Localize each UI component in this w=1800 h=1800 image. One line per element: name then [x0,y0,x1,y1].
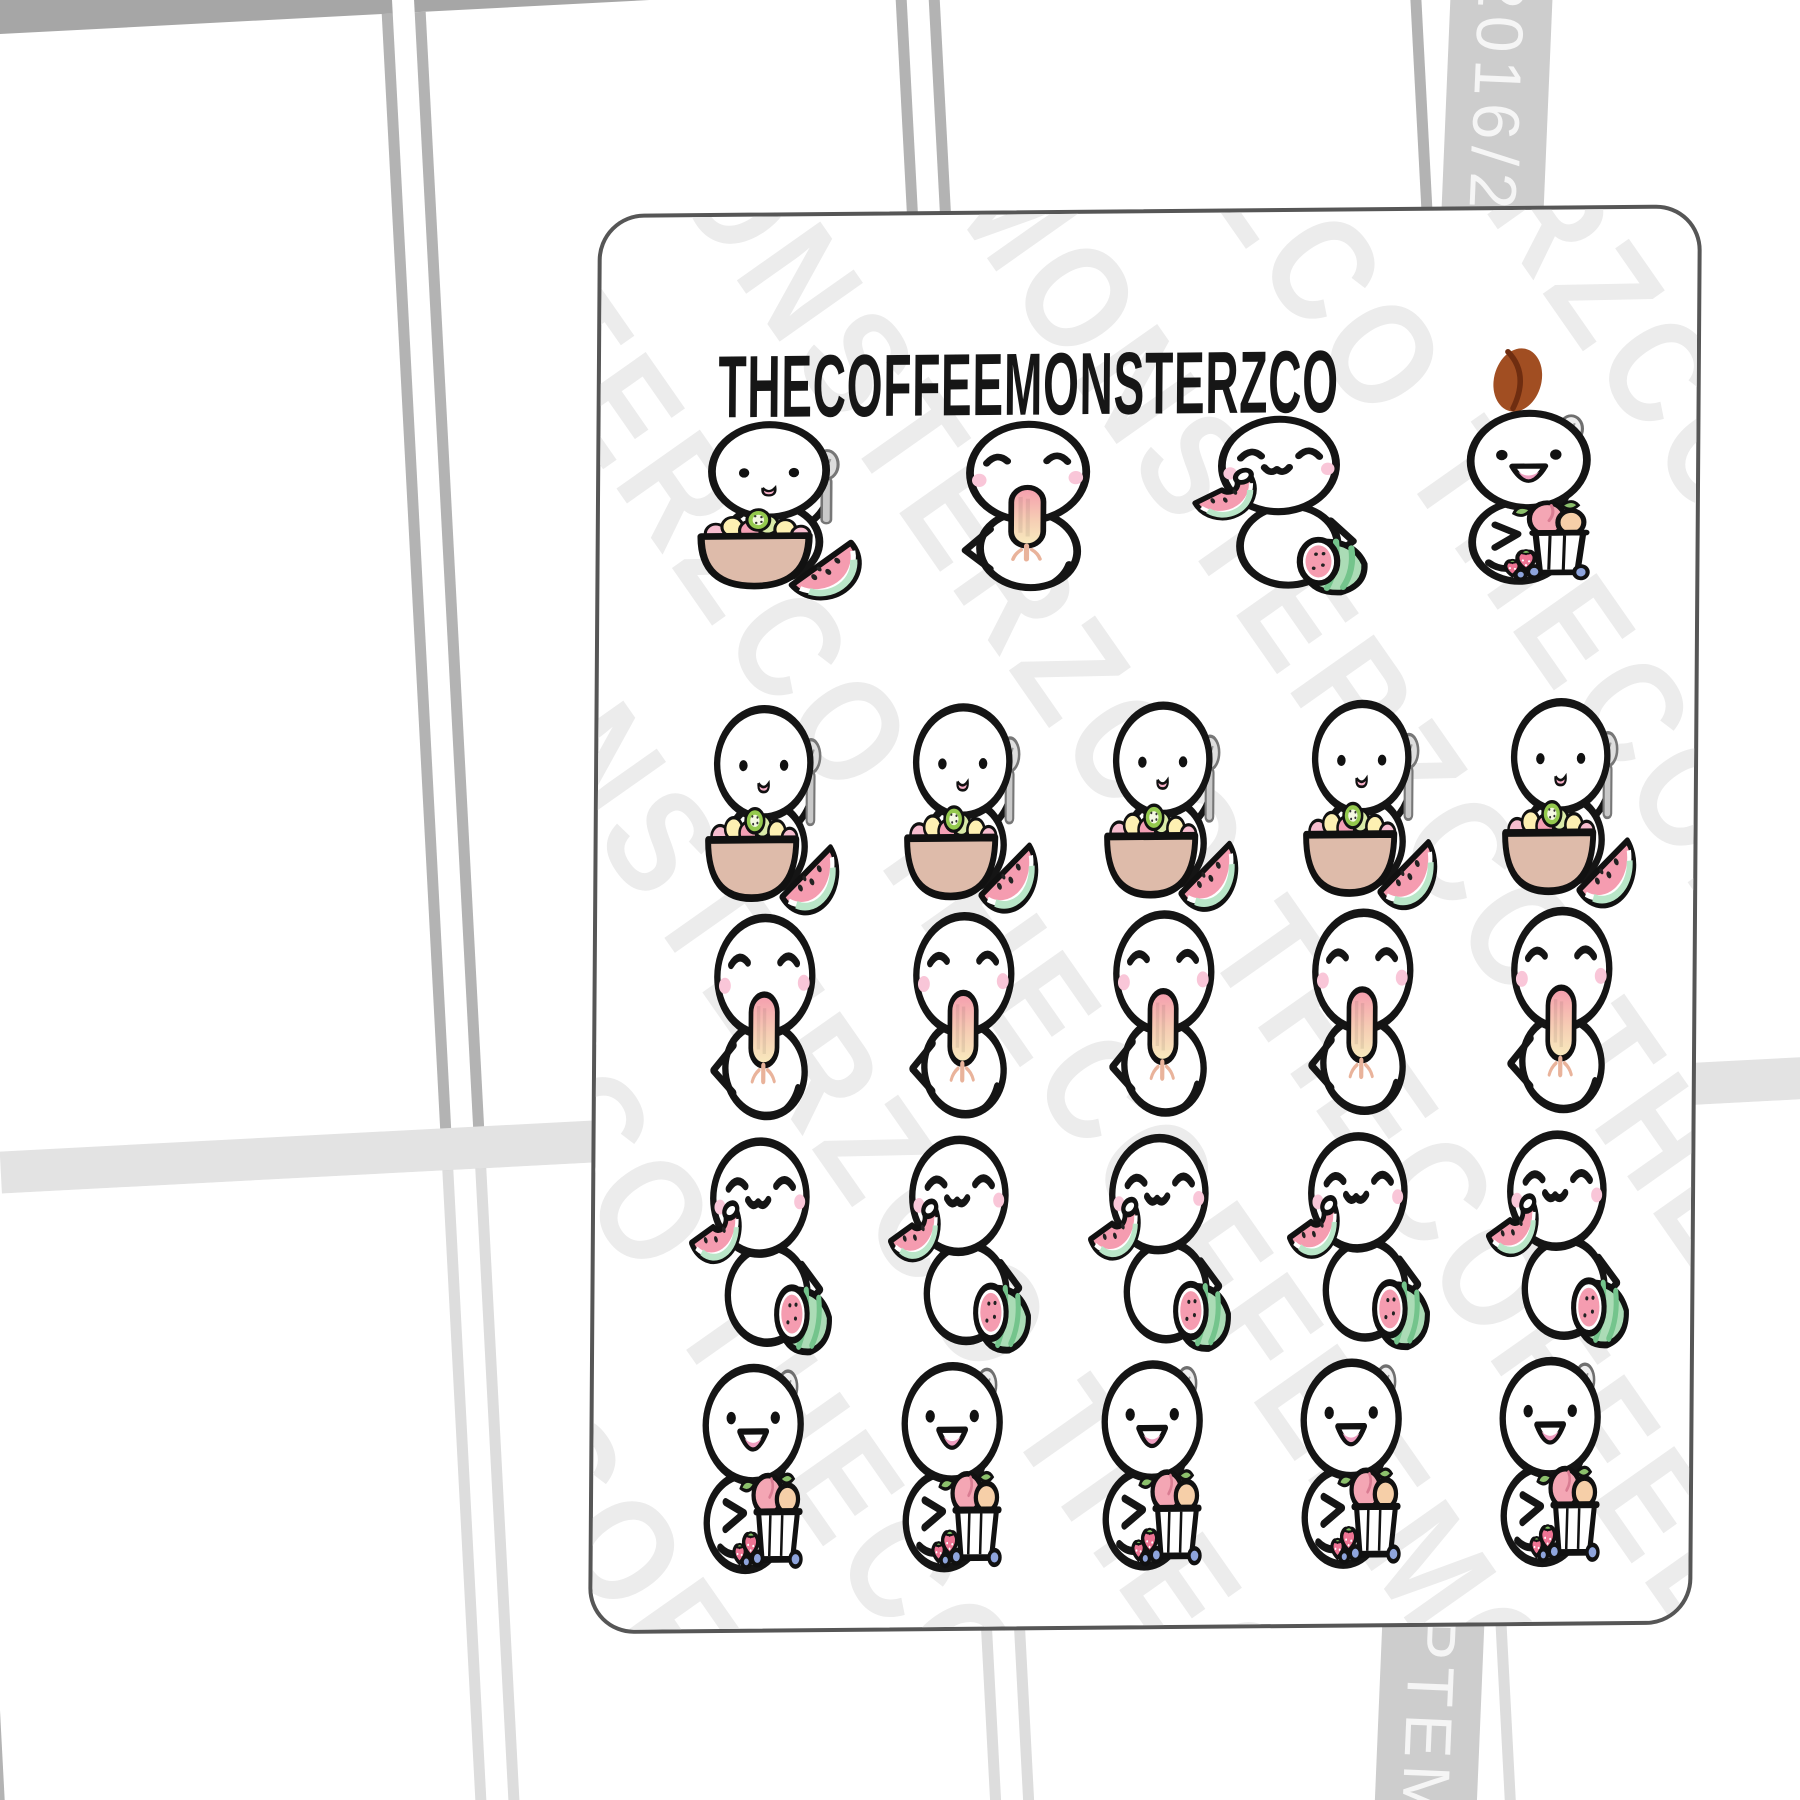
sticker-popsicle [1074,894,1254,1136]
planner-column-header [0,0,393,39]
sticker-row-2 [677,685,1654,926]
sticker-rows [592,208,1698,1630]
sticker-fruit-salad-bowl [1076,688,1256,922]
sticker-watermelon [1072,1121,1252,1363]
sticker-sheet: THECOFFEEMONSTERZCO THECOFFEEMONSTERZCO … [588,204,1702,1634]
sticker-berry-basket [1469,1349,1649,1589]
sticker-row-5 [672,1349,1649,1596]
sticker-watermelon [1471,1118,1651,1360]
sticker-popsicle [1273,893,1453,1135]
planner-column-header [411,0,906,12]
sticker-fruit-salad-bowl [663,410,882,610]
scene: 2016/2 PTEMB THECOFFEEMONSTERZCO THECOFF… [0,0,1800,1800]
sticker-popsicle [1473,891,1653,1133]
sticker-watermelon [1175,405,1394,605]
sticker-watermelon [873,1123,1053,1365]
sticker-fruit-salad-bowl [876,690,1056,924]
sticker-popsicle [676,898,856,1140]
sticker-popsicle [875,896,1055,1138]
sticker-fruit-salad-bowl [1275,687,1455,921]
sticker-berry-basket [672,1356,852,1596]
sticker-berry-basket [1071,1352,1251,1592]
sticker-berry-basket [1270,1351,1450,1591]
sticker-watermelon [1272,1120,1452,1362]
sticker-popsicle [919,407,1138,607]
sticker-fruit-salad-bowl [677,692,857,926]
sticker-row-4 [674,1118,1651,1367]
sticker-berry-basket [872,1354,1052,1594]
ribbon-top-text: 2016/2 [1441,0,1553,218]
sticker-fruit-salad-bowl [1474,685,1654,919]
sticker-berry-basket [1430,403,1649,603]
sticker-row-1 [663,403,1649,610]
sticker-watermelon [674,1125,854,1367]
ribbon-bottom-text: PTEMB [1372,1614,1485,1800]
sticker-row-3 [676,891,1653,1140]
